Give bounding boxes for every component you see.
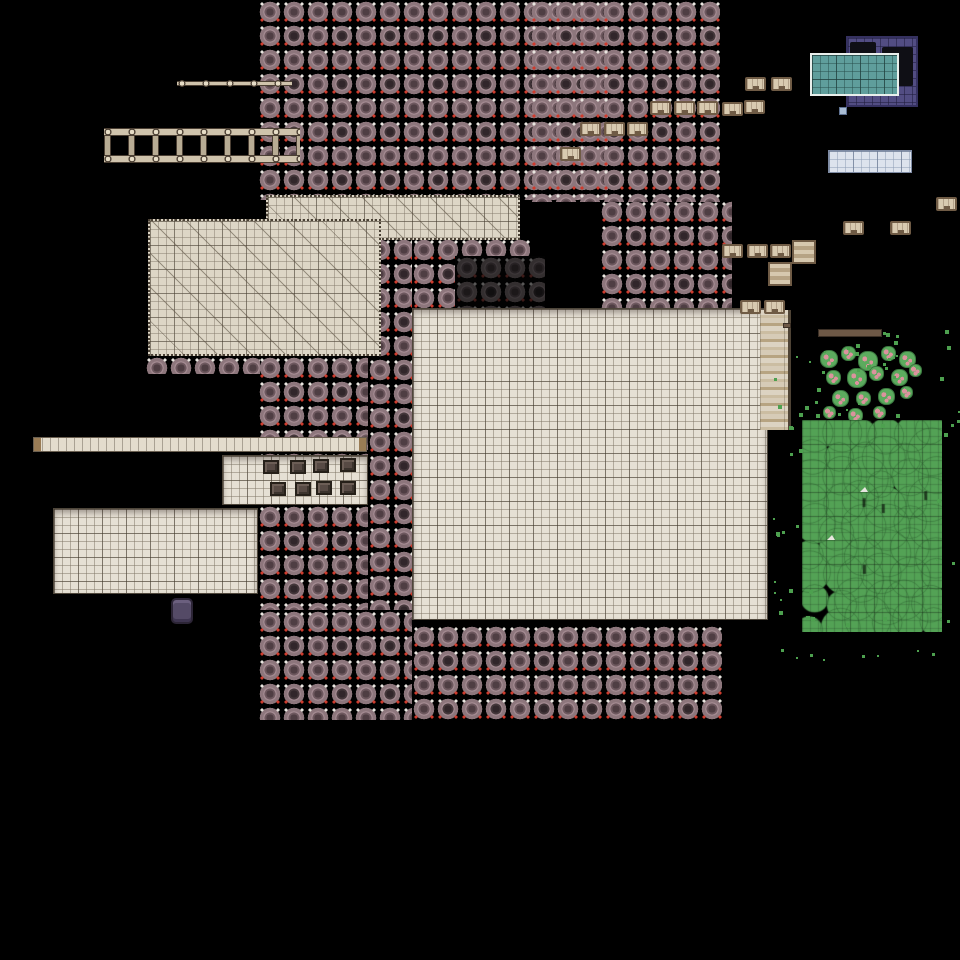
storage-box[interactable] bbox=[316, 481, 332, 495]
grass-dot bbox=[799, 413, 803, 417]
supply-crate[interactable] bbox=[843, 221, 864, 235]
water-tile bbox=[839, 107, 847, 115]
storage-box[interactable] bbox=[313, 459, 329, 473]
grass-dot bbox=[799, 449, 803, 453]
berry-bush[interactable] bbox=[909, 364, 922, 377]
berry-bush[interactable] bbox=[878, 388, 895, 405]
grass-dot bbox=[789, 589, 793, 593]
grass-dot bbox=[888, 358, 891, 361]
grass-dot bbox=[846, 623, 850, 627]
grass-dot bbox=[824, 351, 826, 353]
grass-dot bbox=[809, 361, 811, 363]
wood-plank-item[interactable] bbox=[818, 329, 882, 337]
grass-dot bbox=[896, 355, 898, 357]
grass-dot bbox=[789, 426, 793, 430]
horizontal-ladder[interactable] bbox=[104, 128, 300, 163]
storage-box[interactable] bbox=[340, 481, 356, 495]
supply-crate[interactable] bbox=[604, 122, 625, 136]
grass-dot bbox=[780, 599, 782, 601]
scaffold-rail[interactable] bbox=[177, 79, 292, 88]
grass-dot bbox=[779, 611, 783, 615]
supply-crate[interactable] bbox=[771, 77, 792, 91]
storage-box[interactable] bbox=[263, 460, 279, 474]
rock-terrain[interactable] bbox=[600, 200, 732, 312]
grass-dot bbox=[796, 525, 799, 528]
supply-crate[interactable] bbox=[740, 300, 761, 314]
floor-area bbox=[412, 308, 768, 620]
supply-crate[interactable] bbox=[936, 197, 957, 211]
grass-dot bbox=[776, 532, 780, 536]
supply-crate[interactable] bbox=[650, 101, 671, 115]
grass-dot bbox=[822, 371, 825, 374]
grass-dot bbox=[944, 433, 948, 437]
plank-pile[interactable] bbox=[768, 262, 792, 286]
grass-dot bbox=[893, 357, 895, 359]
supply-crate[interactable] bbox=[697, 101, 718, 115]
grass-dot bbox=[806, 616, 810, 620]
berry-bush[interactable] bbox=[832, 390, 849, 407]
grass-dot bbox=[917, 650, 919, 652]
grass-dot bbox=[815, 401, 818, 404]
grass-dot bbox=[838, 413, 841, 416]
water-pool[interactable] bbox=[810, 53, 899, 96]
plank-wall bbox=[760, 310, 791, 430]
grass-dot bbox=[855, 352, 859, 356]
berry-bush[interactable] bbox=[900, 386, 913, 399]
supply-crate[interactable] bbox=[764, 300, 785, 314]
grass-dot bbox=[947, 346, 951, 350]
grass-dot bbox=[816, 414, 820, 418]
construction-floor bbox=[148, 219, 381, 356]
rock-terrain[interactable] bbox=[412, 625, 722, 720]
grass-dot bbox=[936, 559, 938, 561]
bird-sprite bbox=[860, 487, 868, 492]
grass-dot bbox=[947, 620, 950, 623]
grass-dot bbox=[774, 581, 776, 583]
grass-dot bbox=[877, 655, 879, 657]
grass-dot bbox=[952, 562, 955, 565]
bird-sprite bbox=[827, 535, 835, 540]
plank-pile[interactable] bbox=[792, 240, 816, 264]
grass-dot bbox=[796, 657, 798, 659]
supply-crate[interactable] bbox=[744, 100, 765, 114]
grass-dot bbox=[883, 332, 886, 335]
grass-dot bbox=[893, 376, 896, 379]
grass-dot bbox=[790, 453, 793, 456]
wooden-beam[interactable] bbox=[33, 437, 367, 452]
supply-crate[interactable] bbox=[770, 244, 791, 258]
grass-dot bbox=[881, 424, 885, 428]
grass-dot bbox=[856, 344, 860, 348]
berry-bush[interactable] bbox=[826, 370, 841, 385]
supply-crate[interactable] bbox=[890, 221, 911, 235]
rock-terrain[interactable] bbox=[258, 610, 412, 720]
grass-dot bbox=[883, 363, 886, 366]
grass-dot bbox=[862, 655, 865, 658]
supply-crate[interactable] bbox=[580, 122, 601, 136]
grass-dot bbox=[951, 424, 954, 427]
storage-box[interactable] bbox=[290, 460, 306, 474]
grass-dot bbox=[823, 659, 825, 661]
supply-crate[interactable] bbox=[747, 244, 768, 258]
rock-terrain[interactable] bbox=[258, 505, 368, 610]
grass-dot bbox=[778, 405, 782, 409]
grass-dot bbox=[885, 367, 888, 370]
purple-machine[interactable] bbox=[171, 598, 193, 624]
berry-bush[interactable] bbox=[873, 406, 886, 419]
grass-dot bbox=[774, 592, 776, 594]
grass-dot bbox=[796, 356, 798, 358]
grass-dot bbox=[940, 377, 944, 381]
berry-bush[interactable] bbox=[823, 406, 836, 419]
grass-dot bbox=[894, 341, 898, 345]
grass-dot bbox=[896, 335, 899, 338]
grass-dot bbox=[782, 531, 785, 534]
grass-dot bbox=[858, 403, 860, 405]
grass-dot bbox=[809, 590, 813, 594]
supply-crate[interactable] bbox=[674, 101, 695, 115]
grass-dot bbox=[811, 617, 815, 621]
supply-crate[interactable] bbox=[627, 122, 648, 136]
storage-box[interactable] bbox=[340, 458, 356, 472]
grass-dot bbox=[810, 654, 813, 657]
tilemap-world bbox=[0, 0, 960, 960]
supply-crate[interactable] bbox=[722, 244, 743, 258]
supply-crate[interactable] bbox=[722, 102, 743, 116]
berry-bush[interactable] bbox=[869, 366, 884, 381]
grass-dot bbox=[883, 617, 887, 621]
dark-rock-patch[interactable] bbox=[455, 256, 545, 312]
grass-dot bbox=[896, 414, 900, 418]
grass-dot bbox=[817, 388, 821, 392]
grass-dot bbox=[805, 406, 809, 410]
grass-dot bbox=[857, 369, 860, 372]
tree-canopy[interactable] bbox=[802, 420, 942, 632]
rock-terrain[interactable] bbox=[145, 356, 260, 374]
grass-dot bbox=[827, 626, 829, 628]
storage-box[interactable] bbox=[270, 482, 286, 496]
grass-dot bbox=[773, 518, 775, 520]
grass-dot bbox=[847, 347, 850, 350]
grass-dot bbox=[945, 330, 949, 334]
supply-crate[interactable] bbox=[745, 77, 766, 91]
storage-box[interactable] bbox=[295, 482, 311, 496]
grass-dot bbox=[932, 653, 935, 656]
floor-area bbox=[53, 508, 258, 594]
grass-dot bbox=[846, 409, 848, 411]
berry-bush[interactable] bbox=[820, 350, 838, 368]
ice-floor bbox=[828, 150, 912, 173]
grass-dot bbox=[886, 333, 890, 337]
grass-dot bbox=[774, 378, 777, 381]
grass-dot bbox=[781, 649, 784, 652]
supply-crate[interactable] bbox=[560, 147, 581, 161]
wood-dash-item bbox=[783, 323, 791, 328]
grass-dot bbox=[937, 499, 941, 503]
grass-dot bbox=[867, 365, 871, 369]
